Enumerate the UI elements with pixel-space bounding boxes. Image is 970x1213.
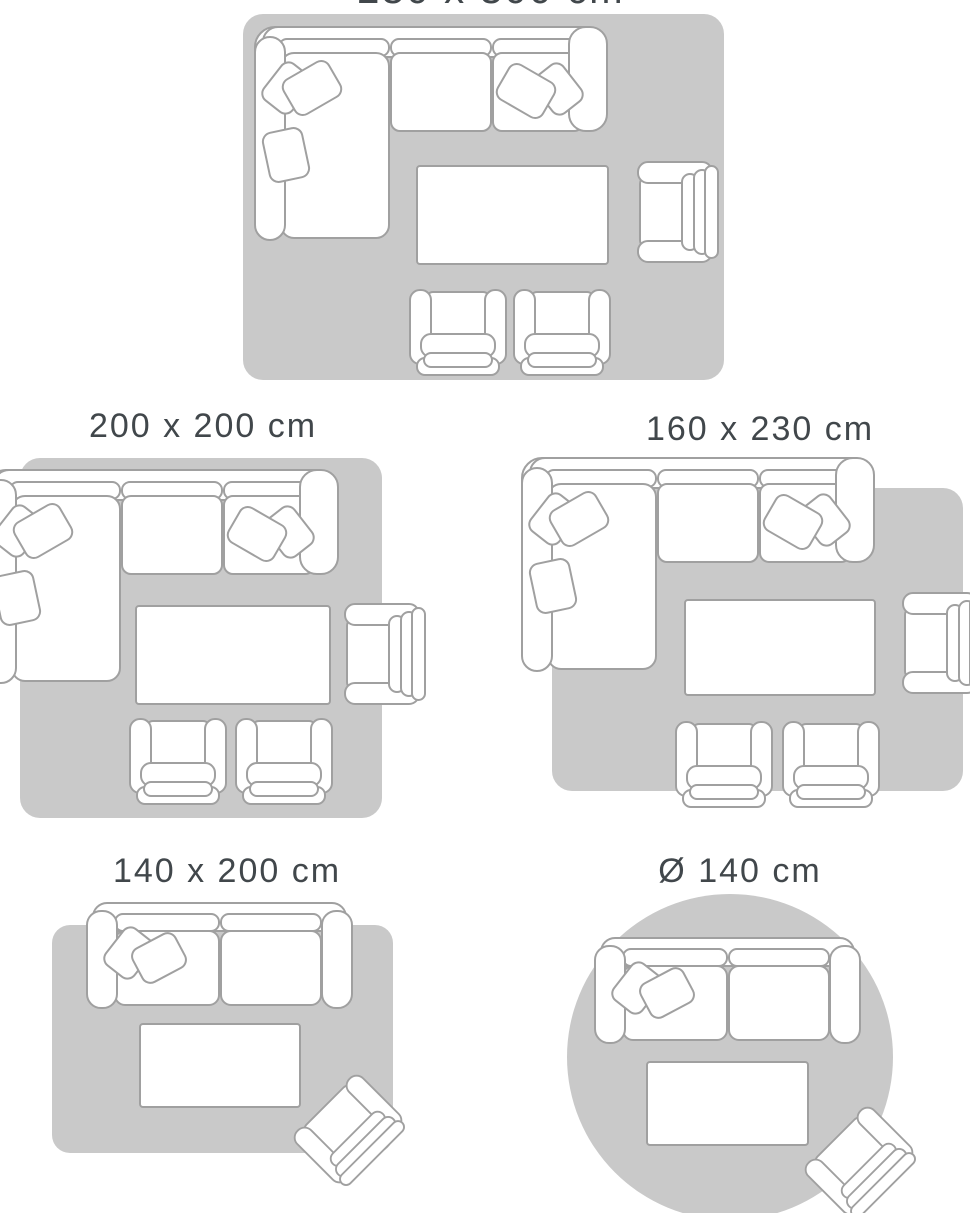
size-label-160x230: 160 x 230 cm bbox=[560, 412, 960, 446]
two-seat-sofa-icon bbox=[87, 903, 352, 1008]
armchair-icon bbox=[903, 593, 970, 693]
club-chair-icon bbox=[130, 719, 226, 804]
rug-size-guide-graphic bbox=[0, 0, 970, 1213]
armchair-icon bbox=[638, 162, 718, 262]
layout-diagram-160x230 bbox=[522, 458, 970, 807]
armchair-icon bbox=[345, 604, 425, 704]
club-chair-icon bbox=[514, 290, 610, 375]
size-label-200x200: 200 x 200 cm bbox=[3, 409, 403, 443]
club-chair-icon bbox=[236, 719, 332, 804]
club-chair-icon bbox=[783, 722, 879, 807]
two-seat-sofa-icon bbox=[595, 938, 860, 1043]
size-label-230x300: 230 x 300 cm bbox=[241, 0, 741, 10]
coffee-table-icon bbox=[647, 1062, 808, 1145]
layout-diagram-200x200 bbox=[0, 458, 425, 818]
coffee-table-icon bbox=[417, 166, 608, 264]
size-label-round-140: Ø 140 cm bbox=[540, 854, 940, 888]
coffee-table-icon bbox=[136, 606, 330, 704]
coffee-table-icon bbox=[685, 600, 875, 695]
layout-diagram-230x300 bbox=[243, 14, 724, 380]
layout-diagram-round-140 bbox=[567, 894, 920, 1213]
club-chair-icon bbox=[676, 722, 772, 807]
size-label-140x200: 140 x 200 cm bbox=[27, 854, 427, 888]
club-chair-icon bbox=[410, 290, 506, 375]
layout-diagram-140x200 bbox=[52, 903, 409, 1190]
coffee-table-icon bbox=[140, 1024, 300, 1107]
rug-size-guide: 230 x 300 cm 200 x 200 cm 160 x 230 cm 1… bbox=[0, 0, 970, 1213]
